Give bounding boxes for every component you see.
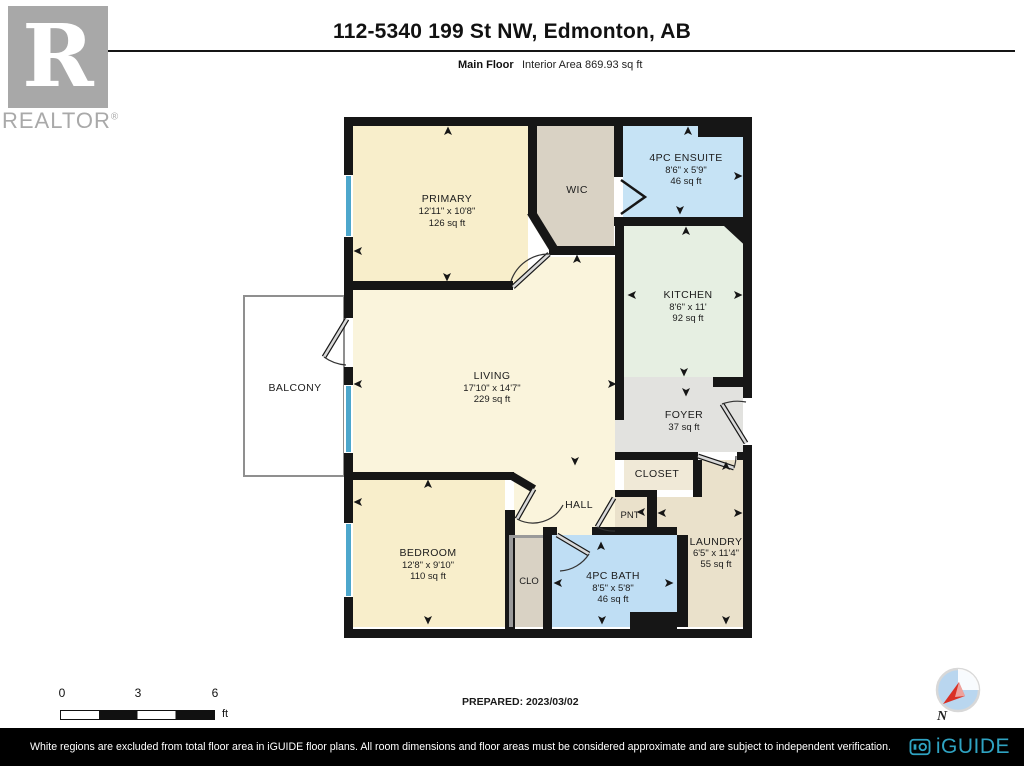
window-primary	[344, 175, 353, 237]
room-dims-bedroom: 12'8" x 9'10"	[402, 560, 454, 571]
wall-left-4	[344, 453, 353, 523]
footer-bar: White regions are excluded from total fl…	[0, 728, 1024, 766]
floor-plan-page: 112-5340 199 St NW, Edmonton, AB Main Fl…	[0, 0, 1024, 766]
room-area-ensuite: 46 sq ft	[670, 176, 702, 187]
room-label-kitchen: KITCHEN	[664, 289, 713, 301]
wall-clo-bath	[543, 527, 552, 638]
room-dims-ensuite: 8'6" x 5'9"	[665, 165, 707, 176]
scale-tick-0: 0	[56, 686, 68, 700]
room-label-clo: CLO	[519, 576, 539, 587]
wall-bath-notch	[630, 612, 677, 629]
room-area-bath: 46 sq ft	[597, 594, 629, 605]
wall-primary-bottom	[344, 281, 513, 290]
room-label-bedroom: BEDROOM	[399, 547, 456, 559]
room-label-living: LIVING	[474, 370, 511, 382]
wall-bedroom-top	[344, 472, 514, 480]
wall-wic-ensuite	[614, 117, 623, 177]
wall-right-1	[743, 117, 752, 398]
wall-clo-thin-top	[512, 535, 543, 538]
room-label-foyer: FOYER	[665, 409, 703, 421]
wall-living-kitchen	[615, 226, 624, 420]
realtor-wordmark: REALTOR®	[2, 108, 142, 134]
room-label-wic: WIC	[566, 184, 588, 196]
room-label-closet: CLOSET	[635, 468, 680, 480]
realtor-logo: R	[8, 6, 108, 108]
compass-north-label: N	[936, 709, 948, 724]
footer-disclaimer: White regions are excluded from total fl…	[30, 741, 891, 753]
wall-ensuite-kitchen	[614, 217, 752, 226]
room-dims-kitchen: 8'6" x 11'	[669, 302, 707, 313]
room-area-foyer: 37 sq ft	[668, 422, 700, 433]
registered-trademark-icon: ®	[111, 112, 119, 123]
window-bedroom	[344, 523, 353, 597]
realtor-logo-letter: R	[22, 14, 93, 100]
wall-right-2	[743, 445, 752, 638]
wall-ensuite-notch	[698, 117, 752, 137]
wall-laundry-door-jamb	[737, 452, 743, 460]
wall-top	[344, 117, 752, 126]
wall-left-2	[344, 237, 353, 318]
iguide-wordmark: iGUIDE	[936, 735, 1010, 759]
room-area-bedroom: 110 sq ft	[410, 571, 446, 582]
wall-primary-wic	[528, 117, 537, 215]
window-living	[344, 385, 353, 453]
page-title: 112-5340 199 St NW, Edmonton, AB	[0, 20, 1024, 44]
room-label-balcony: BALCONY	[269, 382, 322, 394]
room-area-laundry: 55 sq ft	[700, 559, 732, 570]
wall-bath-top-2	[592, 527, 677, 535]
floor-label: Main Floor	[458, 59, 514, 71]
room-dims-laundry: 6'5" x 11'4"	[693, 548, 739, 559]
iguide-logo: iGUIDE	[909, 735, 1010, 759]
header-divider-line	[28, 50, 1015, 52]
room-area-kitchen: 92 sq ft	[672, 313, 704, 324]
wall-left-1	[344, 117, 353, 175]
wall-bath-laundry	[677, 535, 688, 627]
room-dims-primary: 12'11" x 10'8"	[419, 206, 476, 217]
room-label-primary: PRIMARY	[422, 193, 472, 205]
wall-kitchen-foyer	[713, 377, 743, 387]
room-label-hall: HALL	[565, 499, 593, 511]
wall-closet-right	[693, 460, 702, 497]
scale-tick-6: 6	[209, 686, 221, 700]
wall-clo-thin-left	[509, 535, 513, 627]
wall-wic-bottom	[549, 246, 615, 255]
room-dims-living: 17'10" x 14'7"	[463, 383, 520, 394]
scale-bar	[60, 710, 215, 720]
prepared-date-label: PREPARED: 2023/03/02	[462, 696, 579, 708]
room-label-laundry: LAUNDRY	[690, 536, 743, 548]
iguide-camera-icon	[909, 737, 931, 757]
wall-bath-top-1	[543, 527, 557, 535]
room-label-bath: 4PC BATH	[586, 570, 640, 582]
interior-area-label: Interior Area 869.93 sq ft	[522, 59, 642, 71]
compass-icon: N	[928, 664, 988, 724]
wall-left-3	[344, 367, 353, 385]
room-label-pnt: PNT	[621, 510, 640, 521]
scale-unit-label: ft	[222, 708, 228, 720]
room-area-living: 229 sq ft	[474, 394, 511, 405]
floor-plan: PRIMARY 12'11" x 10'8" 126 sq ft WIC 4PC…	[230, 100, 774, 652]
scale-tick-3: 3	[132, 686, 144, 700]
room-label-ensuite: 4PC ENSUITE	[649, 152, 722, 164]
room-area-primary: 126 sq ft	[429, 218, 466, 229]
wall-foyer-bottom	[615, 452, 698, 460]
room-dims-bath: 8'5" x 5'8"	[592, 583, 634, 594]
wall-left-5	[344, 597, 353, 638]
